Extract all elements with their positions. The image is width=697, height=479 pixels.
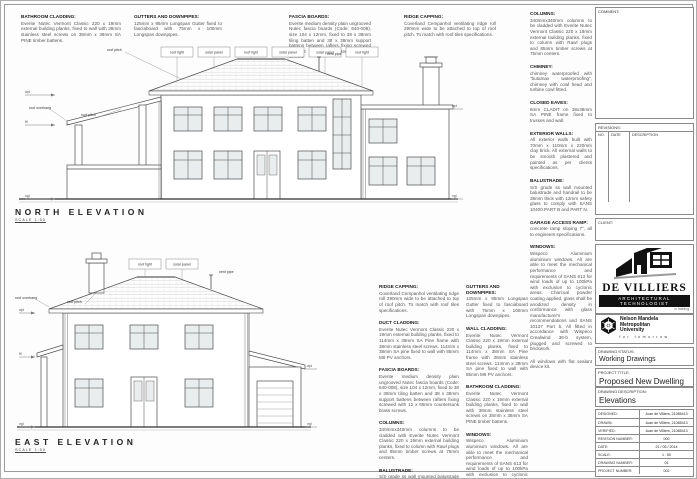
title-block: COMMENT: REVISIONS: NO. DATE DESCRIPTION… bbox=[595, 7, 694, 473]
note-block: WINDOWS:Wispeco Aluminium aluminium wind… bbox=[466, 432, 528, 479]
note-title: DUCT CLADDING: bbox=[379, 320, 459, 326]
firm-training-note: in training bbox=[596, 307, 693, 311]
drawing-status-box: DRAWING STATUS: Working Drawings bbox=[595, 347, 694, 366]
note-body: All exterior walls built with 70mm x 110… bbox=[530, 137, 592, 171]
chimney bbox=[423, 67, 439, 107]
note-title: WINDOWS: bbox=[466, 432, 528, 438]
note-body: Everite medium density plain ungrooved N… bbox=[379, 374, 459, 413]
garage-wing bbox=[249, 351, 305, 427]
field-row: DRAWN:Juan de Villiers, 21085413 bbox=[596, 418, 693, 426]
note-title: RIDGE CAPPING: bbox=[379, 284, 459, 290]
north-elevation-title: NORTH ELEVATION bbox=[15, 207, 147, 217]
drawing-status-value: Working Drawings bbox=[596, 355, 693, 365]
revisions-rows bbox=[596, 138, 693, 202]
note-title: GUTTERS AND DOWNPIPES: bbox=[134, 14, 222, 20]
window bbox=[75, 325, 103, 349]
field-label: DATE: bbox=[596, 443, 640, 450]
callout-label: solar panel bbox=[279, 51, 297, 55]
north-elevation-scale: SCALE 1:50 bbox=[15, 218, 46, 222]
fascia-board bbox=[149, 91, 373, 95]
callout-label: solar panel bbox=[205, 51, 223, 55]
client-box: CLIENT: bbox=[595, 218, 694, 241]
east-elevation-scale: SCALE 1:50 bbox=[15, 448, 46, 452]
chimney-cap bbox=[86, 259, 107, 263]
column bbox=[41, 357, 47, 427]
drawing-description-value: Elevations bbox=[596, 395, 693, 407]
window bbox=[174, 151, 202, 179]
firm-logo-box: DE VILLIERS ARCHITECTURAL TECHNOLOGIST i… bbox=[595, 244, 694, 314]
note-body: Coverland Cempanhol ventilating ridge ro… bbox=[379, 291, 459, 313]
callout-label: roof light bbox=[244, 51, 258, 55]
level-label: wpl bbox=[452, 104, 457, 108]
note-block: CLOSED EAVES:6mm CLADIT on 38x38mm SA PI… bbox=[530, 100, 592, 124]
note-body: Wispeco Aluminium aluminium windows. All… bbox=[530, 251, 592, 352]
window bbox=[174, 107, 202, 131]
level-label: wpl bbox=[307, 364, 312, 368]
comment-box: COMMENT: bbox=[595, 7, 694, 119]
field-row: VERIFIED:Juan de Villiers, 21085413 bbox=[596, 426, 693, 434]
chimney-cowl bbox=[92, 253, 101, 259]
lean-roof bbox=[249, 351, 305, 369]
note-title: COLUMNS: bbox=[379, 420, 459, 426]
note-body: 125mm x 95mm Longspan Gutter fixed to fa… bbox=[466, 296, 528, 318]
note-body: 6mm CLADIT on 38x38mm SA PINE frame fixe… bbox=[530, 107, 592, 124]
field-value: 21 / 05 / 2014 bbox=[640, 444, 693, 450]
chimney-cap bbox=[420, 63, 442, 67]
note-body: S/S grade ss wall mounted balustrade and… bbox=[530, 185, 592, 213]
level-label: ngl bbox=[452, 194, 457, 198]
field-value: Juan de Villiers, 21085413 bbox=[640, 428, 693, 434]
callout-roof-pitch: roof pitch bbox=[67, 300, 82, 304]
house-logo-icon bbox=[614, 247, 676, 277]
callout-label: roof light bbox=[138, 263, 152, 267]
parapet-coping bbox=[357, 105, 453, 109]
drawing-description-box: DRAWING DESCRIPTION: Elevations bbox=[595, 387, 694, 407]
university-tagline: for tomorrow bbox=[596, 335, 693, 339]
field-value: Juan de Villiers, 21085413 bbox=[640, 420, 693, 426]
revisions-header: NO. DATE DESCRIPTION bbox=[596, 131, 693, 138]
window bbox=[369, 157, 397, 185]
note-block: BALUSTRADE:S/S grade ss wall mounted bal… bbox=[379, 468, 459, 479]
note-block: WINDOWS:Wispeco Aluminium aluminium wind… bbox=[530, 244, 592, 351]
note-body: All windows with flat sealant device kit… bbox=[530, 359, 592, 370]
note-body: Wispeco Aluminium aluminium windows. All… bbox=[466, 438, 528, 479]
field-label: REVISION NUMBER: bbox=[596, 435, 640, 442]
note-title: GUTTERS AND DOWNPIPES: bbox=[466, 284, 528, 295]
note-block: CHIMNEY:chimney waterproofed with "butam… bbox=[530, 64, 592, 93]
note-title: BALUSTRADE: bbox=[530, 178, 592, 184]
window bbox=[369, 119, 397, 143]
note-block: COLUMNS:340mmx340mm columns to be cladde… bbox=[379, 420, 459, 460]
drawing-sheet: BATHROOM CLADDING: Everite Nutec Vermont… bbox=[0, 0, 697, 479]
field-row: REVISION NUMBER:000 bbox=[596, 434, 693, 442]
note-block: FASCIA BOARDS:Everite medium density pla… bbox=[379, 367, 459, 413]
note-block: GUTTERS AND DOWNPIPES:125mm x 95mm Longs… bbox=[466, 284, 528, 319]
callout-vent-pipe: vent pipe bbox=[327, 52, 342, 56]
field-label: DRAWING NUMBER: bbox=[596, 459, 640, 466]
window bbox=[75, 379, 103, 407]
field-label: DESIGNED: bbox=[596, 410, 640, 418]
window bbox=[254, 107, 282, 131]
note-block: All windows with flat sealant device kit… bbox=[530, 359, 592, 370]
note-title: BATHROOM CLADDING: bbox=[21, 14, 121, 20]
roof-callouts: roof light solar panel bbox=[129, 259, 198, 279]
firm-subtitle: ARCHITECTURAL TECHNOLOGIST bbox=[599, 295, 690, 307]
callout-label: solar panel bbox=[173, 263, 191, 267]
field-value: 002 bbox=[640, 468, 693, 474]
firm-name: DE VILLIERS bbox=[596, 282, 693, 294]
field-label: SCALE: bbox=[596, 451, 640, 458]
note-title: RIDGE CAPPING: bbox=[404, 14, 496, 20]
level-label: ffl bbox=[19, 352, 22, 356]
field-label: PROJECT NUMBER: bbox=[596, 467, 640, 474]
east-elevation-title: EAST ELEVATION bbox=[15, 437, 136, 447]
level-label: wpl bbox=[25, 90, 30, 94]
stair-window bbox=[333, 99, 351, 169]
field-row: DATE:21 / 05 / 2014 bbox=[596, 442, 693, 450]
porch bbox=[37, 345, 63, 427]
note-body: Everite Nutec Vermont Classic 220 x 19mm… bbox=[379, 327, 459, 361]
callout-label: roof light bbox=[170, 51, 184, 55]
low-wall bbox=[67, 165, 161, 199]
note-title: CHIMNEY: bbox=[530, 64, 592, 70]
notes-column-mid-b: GUTTERS AND DOWNPIPES:125mm x 95mm Longs… bbox=[466, 284, 528, 479]
chimney-cowl bbox=[426, 57, 436, 63]
entrance-door bbox=[254, 151, 280, 199]
window bbox=[214, 107, 242, 131]
north-elevation-drawing: roof light solar panel roof light solar … bbox=[11, 39, 466, 209]
note-block: BATHROOM CLADDING:Everite Nutec Vermont … bbox=[466, 384, 528, 424]
east-elevation-drawing: roof light solar panel roof overhang roo… bbox=[11, 251, 321, 433]
field-label: VERIFIED: bbox=[596, 427, 640, 434]
window bbox=[407, 157, 435, 185]
note-body: 340mmx340mm columns to be cladded with E… bbox=[530, 18, 592, 57]
level-label: ngl bbox=[25, 194, 30, 198]
note-block: WALL CLADDING:Everite Nutec Vermont Clas… bbox=[466, 326, 528, 377]
university-name-line: University bbox=[620, 328, 658, 334]
drawing-description-label: DRAWING DESCRIPTION: bbox=[596, 388, 693, 395]
title-block-fields: DESIGNED:Juan de Villiers, 21085413 DRAW… bbox=[595, 409, 694, 477]
revisions-box: REVISIONS: NO. DATE DESCRIPTION bbox=[595, 123, 694, 215]
note-body: Everite Nutec Vermont Classic 220 x 19mm… bbox=[466, 333, 528, 378]
callout-label: roof light bbox=[355, 51, 369, 55]
level-label: ffl bbox=[25, 120, 28, 124]
note-title: GARAGE ACCESS RAMP: bbox=[530, 220, 592, 226]
note-block: RIDGE CAPPING:Coverland Cempanhol ventil… bbox=[379, 284, 459, 313]
note-block: DUCT CLADDING:Everite Nutec Vermont Clas… bbox=[379, 320, 459, 360]
field-row: SCALE:1 : 50 bbox=[596, 450, 693, 458]
note-title: CLOSED EAVES: bbox=[530, 100, 592, 106]
university-logo-icon bbox=[600, 317, 617, 334]
window bbox=[298, 107, 326, 131]
project-title-label: PROJECT TITLE: bbox=[596, 369, 693, 376]
field-value: 01 bbox=[640, 460, 693, 466]
note-body: 340mmx340mm columns to be cladded with E… bbox=[379, 427, 459, 461]
note-block: BALUSTRADE:S/S grade ss wall mounted bal… bbox=[530, 178, 592, 213]
drawing-status-label: DRAWING STATUS: bbox=[596, 348, 693, 355]
note-body: chimney waterproofed with "butamax water… bbox=[530, 71, 592, 93]
note-title: WALL CLADDING: bbox=[466, 326, 528, 332]
field-label: DRAWN: bbox=[596, 419, 640, 426]
callout-roof-pitch: roof pitch bbox=[107, 48, 122, 52]
note-body: 125mm x 95mm Longspan Gutter fixed to fa… bbox=[134, 21, 222, 38]
lean-roof bbox=[37, 345, 63, 357]
level-label: ngl bbox=[307, 422, 312, 426]
note-block: GARAGE ACCESS RAMP:concrete ramp sloping… bbox=[530, 220, 592, 238]
project-title-box: PROJECT TITLE: Proposed New Dwelling bbox=[595, 368, 694, 387]
comment-label: COMMENT: bbox=[596, 8, 693, 15]
note-body: concrete ramp sloping 7°, all to enginee… bbox=[530, 226, 592, 237]
callout-vent-pipe: vent pipe bbox=[219, 270, 234, 274]
lean-roof bbox=[67, 97, 161, 125]
note-title: EXTERIOR WALLS: bbox=[530, 131, 592, 137]
university-box: Nelson Mandela Metropolitan University f… bbox=[595, 314, 694, 344]
field-value: 000 bbox=[640, 436, 693, 442]
note-title: FASCIA BOARDS: bbox=[379, 367, 459, 373]
revisions-label: REVISIONS: bbox=[596, 124, 693, 131]
field-value: 1 : 50 bbox=[640, 452, 693, 458]
window bbox=[298, 151, 326, 179]
window bbox=[130, 325, 158, 349]
hip-roof bbox=[149, 59, 373, 91]
university-name: Nelson Mandela Metropolitan University bbox=[620, 317, 658, 334]
note-title: BATHROOM CLADDING: bbox=[466, 384, 528, 390]
field-row: DRAWING NUMBER:01 bbox=[596, 458, 693, 466]
note-title: BALUSTRADE: bbox=[379, 468, 459, 474]
window bbox=[185, 379, 213, 407]
callout-roof-overhang: roof overhang bbox=[29, 106, 51, 110]
note-body: Everite Nutec Vermont Classic 220 x 19mm… bbox=[466, 391, 528, 425]
note-block: RIDGE CAPPING: Coverland Cempanhol venti… bbox=[404, 14, 496, 38]
note-block: GUTTERS AND DOWNPIPES: 125mm x 95mm Long… bbox=[134, 14, 222, 38]
chimney bbox=[86, 253, 107, 293]
side-door bbox=[131, 377, 157, 427]
hip-roof bbox=[49, 277, 263, 309]
window bbox=[214, 151, 242, 179]
note-block: COLUMNS:340mmx340mm columns to be cladde… bbox=[530, 11, 592, 57]
note-body: Coverland Cempanhol ventilating ridge ro… bbox=[404, 21, 496, 38]
callout-roof-pitch: roof pitch bbox=[81, 113, 96, 117]
note-block: EXTERIOR WALLS:All exterior walls built … bbox=[530, 131, 592, 171]
callout-roof-overhang: roof overhang bbox=[15, 296, 37, 300]
window bbox=[185, 325, 213, 349]
client-label: CLIENT: bbox=[596, 219, 693, 226]
field-row: PROJECT NUMBER:002 bbox=[596, 466, 693, 474]
field-value: Juan de Villiers, 21085413 bbox=[640, 411, 693, 417]
note-body: S/S grade ss wall mounted balustrade and… bbox=[379, 474, 459, 479]
level-label: ngl bbox=[19, 422, 24, 426]
notes-column-right: COLUMNS:340mmx340mm columns to be cladde… bbox=[530, 11, 592, 377]
note-title: COLUMNS: bbox=[530, 11, 592, 17]
level-label: wpl bbox=[19, 308, 24, 312]
field-row: DESIGNED:Juan de Villiers, 21085413 bbox=[596, 410, 693, 418]
notes-column-mid-a: RIDGE CAPPING:Coverland Cempanhol ventil… bbox=[379, 284, 459, 479]
fascia-board bbox=[49, 309, 263, 313]
note-title: FASCIA BOARDS: bbox=[289, 14, 371, 20]
note-title: WINDOWS: bbox=[530, 244, 592, 250]
